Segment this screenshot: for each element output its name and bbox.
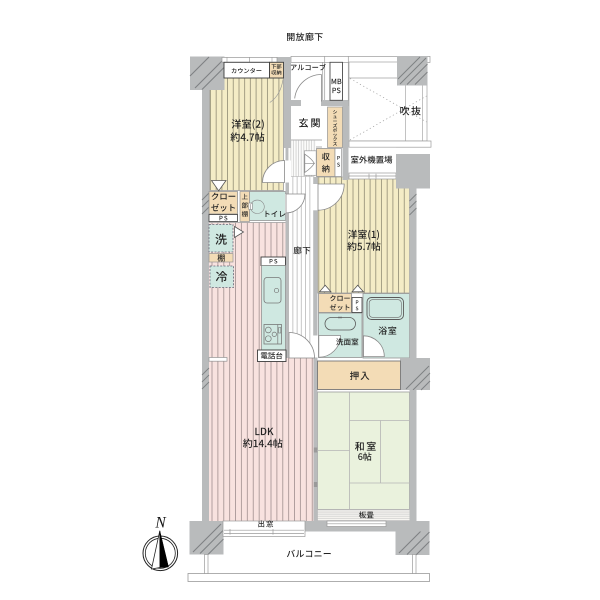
svg-text:N: N [154, 515, 167, 532]
